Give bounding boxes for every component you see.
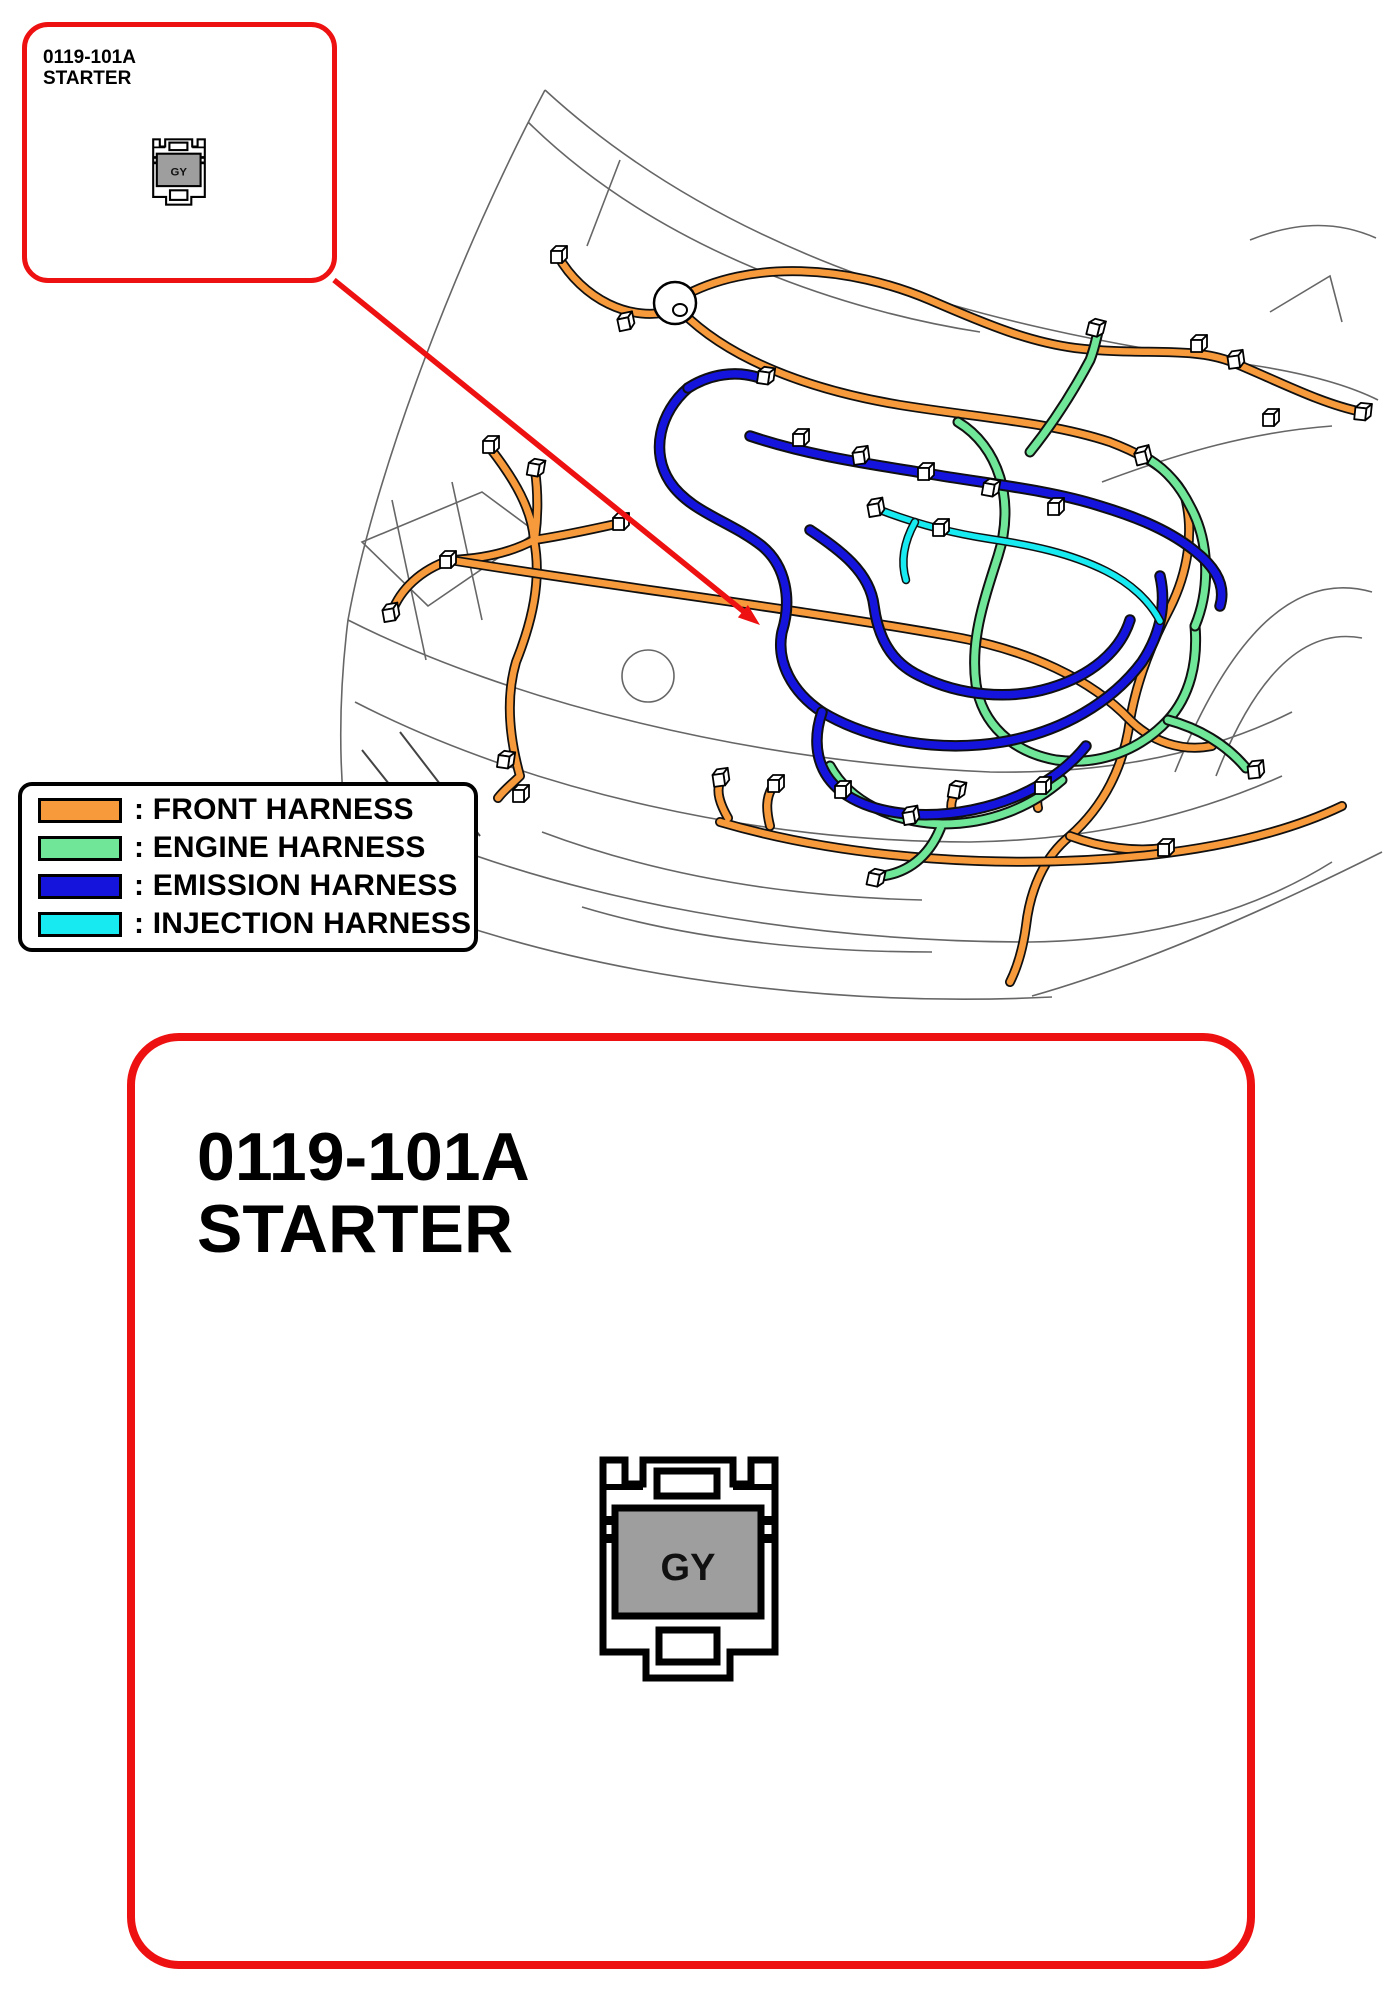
engine-bay-illustration — [330, 60, 1386, 1010]
callout-name: STARTER — [43, 68, 136, 89]
car-body-outline — [341, 90, 1382, 999]
detail-code: 0119-101A — [197, 1121, 530, 1193]
legend-swatch-injection-harness — [38, 912, 122, 937]
connector-icon-large — [599, 1456, 779, 1682]
legend-label-front-harness: : FRONT HARNESS — [134, 793, 414, 827]
legend-label-engine-harness: : ENGINE HARNESS — [134, 831, 426, 865]
legend-label-emission-harness: : EMISSION HARNESS — [134, 869, 458, 903]
legend-label-injection-harness: : INJECTION HARNESS — [134, 907, 471, 941]
legend-item-front-harness: : FRONT HARNESS — [38, 791, 474, 829]
starter-detail-box: 0119-101A STARTER — [127, 1033, 1255, 1969]
starter-callout-box: 0119-101A STARTER — [22, 22, 337, 283]
detail-name: STARTER — [197, 1193, 530, 1265]
legend-item-engine-harness: : ENGINE HARNESS — [38, 829, 474, 867]
connector-cubes — [382, 246, 1372, 888]
harness-legend: : FRONT HARNESS : ENGINE HARNESS : EMISS… — [18, 782, 478, 952]
wiring-location-page: GY — [0, 0, 1386, 1998]
detail-title: 0119-101A STARTER — [197, 1121, 530, 1265]
legend-swatch-engine-harness — [38, 836, 122, 861]
front-emblem — [622, 650, 674, 702]
legend-item-injection-harness: : INJECTION HARNESS — [38, 905, 474, 943]
legend-item-emission-harness: : EMISSION HARNESS — [38, 867, 474, 905]
callout-code: 0119-101A — [43, 47, 136, 68]
injection-harness-wires — [875, 508, 1160, 621]
legend-swatch-emission-harness — [38, 874, 122, 899]
connector-icon-small — [152, 138, 206, 206]
harness-grommet — [654, 282, 696, 324]
legend-swatch-front-harness — [38, 798, 122, 823]
callout-title: 0119-101A STARTER — [43, 47, 136, 89]
